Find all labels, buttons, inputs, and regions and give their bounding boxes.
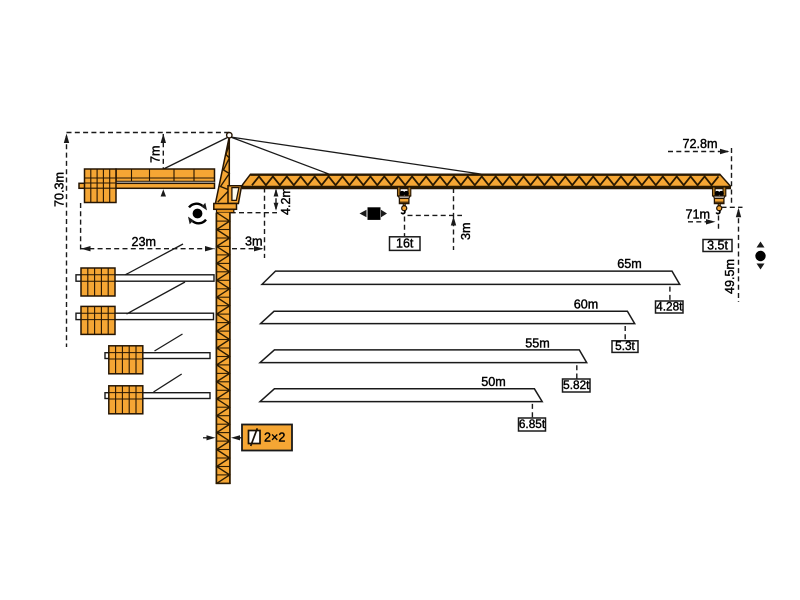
- svg-text:3m: 3m: [459, 223, 473, 241]
- svg-text:60m: 60m: [574, 298, 599, 312]
- svg-text:4.2m: 4.2m: [279, 187, 293, 215]
- svg-text:55m: 55m: [525, 336, 550, 350]
- svg-text:70.3m: 70.3m: [53, 172, 67, 207]
- svg-text:3m: 3m: [245, 235, 263, 249]
- svg-text:4.28t: 4.28t: [656, 300, 683, 314]
- svg-text:2×2: 2×2: [264, 430, 285, 444]
- svg-text:49.5m: 49.5m: [723, 259, 737, 294]
- svg-text:5.3t: 5.3t: [615, 339, 635, 353]
- svg-text:72.8m: 72.8m: [682, 137, 717, 151]
- svg-text:7m: 7m: [148, 146, 162, 164]
- svg-text:6.85t: 6.85t: [519, 417, 546, 431]
- svg-text:50m: 50m: [481, 375, 506, 389]
- svg-text:65m: 65m: [617, 257, 642, 271]
- svg-text:23m: 23m: [132, 235, 157, 249]
- svg-text:5.82t: 5.82t: [563, 378, 590, 392]
- svg-text:3.5t: 3.5t: [707, 238, 728, 252]
- svg-text:16t: 16t: [396, 237, 414, 251]
